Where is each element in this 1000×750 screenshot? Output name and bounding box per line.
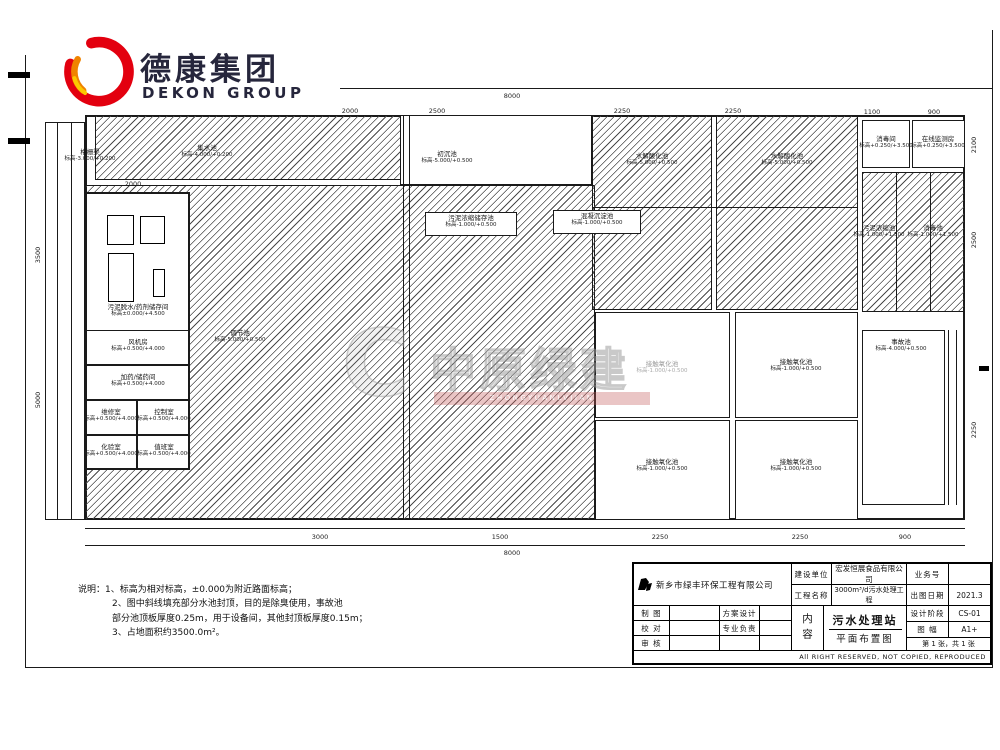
brand-name-en: DEKON GROUP (142, 84, 304, 102)
plan-label-elevation: 标高-1.000/+0.500 (572, 221, 623, 228)
plan-label-name: 格栅渠 (80, 148, 100, 156)
plan-label-name: 集水池 (197, 144, 217, 152)
sheet-frame-left (25, 55, 26, 667)
plan-label-name: 污泥浓缩储存池 (448, 214, 494, 222)
plan-label: 污泥浓缩池标高-1.000/+1.500 (854, 224, 905, 240)
dimension-label: 2250 (652, 533, 669, 541)
plan-label-name: 维修室 (101, 408, 121, 416)
plan-label-name: 调节池 (230, 329, 250, 337)
business-no-label: 业务号 (907, 564, 949, 585)
plan-label: 接触氧化池标高-1.000/+0.500 (771, 458, 822, 474)
plan-label-elevation: 标高-4.000/+0.200 (182, 153, 233, 160)
plan-label-elevation: 标高+0.500/+4.000 (137, 452, 191, 459)
brand-name-cn: 德康集团 (140, 44, 280, 89)
plan-label-elevation: 标高-1.000/+0.500 (637, 467, 688, 474)
plan-label: 值班室标高+0.500/+4.000 (137, 443, 191, 459)
reviewer-label: 审 核 (634, 636, 670, 651)
plan-label-name: 消毒间 (876, 135, 896, 143)
dimension-label: 3500 (34, 247, 42, 264)
plan-label-name: 水解酸化池 (771, 152, 804, 160)
discipline-lead-label: 专业负责 (720, 621, 760, 636)
tank-sludge-row (862, 172, 965, 312)
owner-label: 建设单位 (792, 564, 832, 585)
plan-label-name: 控制室 (154, 408, 174, 416)
checker-label: 校 对 (634, 621, 670, 636)
reviewer-value (670, 636, 720, 651)
plan-label: 接触氧化池标高-1.000/+0.500 (637, 458, 688, 474)
drawing-title-line2: 平面布置图 (836, 631, 894, 645)
tank-collection (95, 115, 420, 180)
dimension-label: 8000 (504, 92, 521, 100)
copyright-note: All RIGHT RESERVED, NOT COPIED, REPRODUC… (634, 651, 990, 663)
company-logo-mark (637, 577, 653, 592)
plan-label-elevation: 标高-1.000/+0.500 (637, 369, 688, 376)
note-line: 2、图中斜线填充部分水池封顶，目的是除臭使用，事故池 (112, 597, 418, 611)
brand-logo: 德康集团 DEKON GROUP (58, 26, 358, 121)
dimension-label: 900 (928, 108, 940, 116)
frame-tick-mark (979, 366, 989, 371)
strip-wall-a (57, 122, 58, 520)
plan-label-name: 水解酸化池 (636, 152, 669, 160)
owner-value: 宏发恒展食品有限公司 (832, 564, 907, 585)
checker-value (670, 621, 720, 636)
plan-label: 水解酸化池标高-5.000/+0.500 (627, 152, 678, 168)
dimension-label: 2250 (614, 107, 631, 115)
plan-label-elevation: 标高±0.000/+4.500 (108, 312, 169, 319)
plan-label-name: 化验室 (101, 443, 121, 451)
equipment-rect (140, 216, 165, 244)
plan-label: 消毒池标高-1.000/+1.500 (908, 224, 959, 240)
plan-label: 加药/储药间标高+0.500/+4.000 (111, 373, 165, 389)
plan-label: 格栅渠标高-3.000/+0.200 (65, 148, 116, 164)
plan-label-elevation: 标高+0.500/+4.000 (137, 417, 191, 424)
plan-label-elevation: 标高+0.500/+4.000 (84, 452, 138, 459)
dimension-label: 1100 (864, 108, 881, 116)
plan-label-elevation: 标高+0.500/+4.000 (111, 347, 165, 354)
dimension-label: 2250 (792, 533, 809, 541)
plan-label-name: 污泥脱水/药剂储存间 (108, 303, 169, 311)
plan-label: 维修室标高+0.500/+4.000 (84, 408, 138, 424)
grit-channel-strip (45, 122, 85, 520)
sludge-divider-b (930, 172, 931, 312)
plan-label: 接触氧化池标高-1.000/+0.500 (771, 358, 822, 374)
plan-label-name: 接触氧化池 (780, 458, 813, 466)
plan-label-elevation: 标高-1.000/+0.500 (771, 367, 822, 374)
note-line: 3、占地面积约3500.0m²。 (112, 626, 418, 640)
dimension-label: 2250 (970, 422, 978, 439)
note-line: 说明：1、标高为相对标高，±0.000为附近路面标高； (78, 583, 418, 597)
plan-label: 水解酸化池标高-5.000/+0.500 (762, 152, 813, 168)
plan-label-elevation: 标高-4.000/+0.500 (876, 347, 927, 354)
corridor-wall-a (948, 330, 949, 505)
plan-label-elevation: 标高-5.000/+0.500 (215, 338, 266, 345)
sheet-count: 第 1 张，共 1 张 (907, 638, 990, 651)
plan-label-name: 接触氧化池 (780, 358, 813, 366)
equipment-rect (153, 269, 165, 297)
plan-label: 接触氧化池标高-1.000/+0.500 (637, 360, 688, 376)
corridor-wall-b (956, 330, 957, 505)
plan-label-name: 污泥浓缩池 (863, 224, 896, 232)
empty-cell-a (720, 636, 760, 651)
plan-label: 在线监测房标高+0.250/+3.500 (911, 135, 965, 151)
plan-label: 控制室标高+0.500/+4.000 (137, 408, 191, 424)
plan-label-elevation: 标高-5.000/+0.500 (762, 161, 813, 168)
dimension-label: 1500 (492, 533, 509, 541)
note-line: 部分池顶板厚度0.25m，用于设备间，其他封顶板厚度0.15m； (112, 612, 418, 626)
plan-label-elevation: 标高+0.500/+4.000 (84, 417, 138, 424)
dimension-label: 900 (899, 533, 911, 541)
plan-label-name: 风机房 (128, 338, 148, 346)
strip-wall-b (71, 122, 72, 520)
discipline-lead-value (760, 621, 792, 636)
dekon-swoosh-icon (58, 26, 140, 114)
project-name-value: 3000m³/d污水处理工程 (832, 585, 907, 606)
tank-emergency (862, 330, 945, 505)
sheet-size-value: A1+ (949, 622, 990, 638)
dimension-label: 5000 (34, 392, 42, 409)
plan-label: 污泥脱水/药剂储存间标高±0.000/+4.500 (108, 303, 169, 319)
plan-label-elevation: 标高-1.000/+0.500 (446, 223, 497, 230)
channel-wall-a (403, 115, 404, 520)
equipment-rect (107, 215, 134, 245)
scheme-design-value (760, 606, 792, 621)
hydrolysis-divider (592, 207, 858, 208)
plan-label: 污泥浓缩储存池标高-1.000/+0.500 (446, 214, 497, 230)
design-stage-value: CS-01 (949, 606, 990, 622)
company-name: 新乡市绿丰环保工程有限公司 (656, 579, 773, 591)
plan-label-name: 接触氧化池 (646, 458, 679, 466)
plan-label-name: 在线监测房 (922, 135, 955, 143)
plan-label: 调节池标高-5.000/+0.500 (215, 329, 266, 345)
plan-label-name: 加药/储药间 (121, 373, 156, 381)
plan-label: 化验室标高+0.500/+4.000 (84, 443, 138, 459)
plan-label-name: 消毒池 (923, 224, 943, 232)
plan-label-name: 值班室 (154, 443, 174, 451)
design-company: 新乡市绿丰环保工程有限公司 (634, 564, 792, 606)
drawing-title-line1: 污水处理站 (829, 612, 902, 630)
sheet-size-label: 图 幅 (907, 622, 949, 638)
empty-cell-b (760, 636, 792, 651)
plan-label: 集水池标高-4.000/+0.200 (182, 144, 233, 160)
plan-label-elevation: 标高-1.000/+1.500 (854, 233, 905, 240)
dimension-label: 2100 (970, 137, 978, 154)
drawing-title-cell: 污水处理站 平面布置图 (824, 606, 907, 651)
sheet-frame-right (992, 30, 993, 668)
plan-label-elevation: 标高+0.250/+3.500 (859, 144, 913, 151)
sheet-frame-top (340, 88, 992, 89)
plan-label: 风机房标高+0.500/+4.000 (111, 338, 165, 354)
content-label-cell: 内容 (792, 606, 824, 651)
plan-label-elevation: 标高+0.500/+4.000 (111, 382, 165, 389)
plan-label: 混凝沉淀池标高-1.000/+0.500 (572, 212, 623, 228)
issue-date-label: 出图日期 (907, 585, 949, 606)
plan-label: 事故池标高-4.000/+0.500 (876, 338, 927, 354)
drafter-value (670, 606, 720, 621)
plan-label: 消毒间标高+0.250/+3.500 (859, 135, 913, 151)
dimension-label: 3000 (312, 533, 329, 541)
dimension-label: 2500 (970, 232, 978, 249)
plan-label-elevation: 标高-5.000/+0.500 (627, 161, 678, 168)
sludge-divider-a (896, 172, 897, 312)
dimension-label: 2500 (429, 107, 446, 115)
plan-label: 初沉池标高-5.000/+0.500 (422, 150, 473, 166)
scheme-design-label: 方案设计 (720, 606, 760, 621)
plan-label-elevation: 标高-1.000/+0.500 (771, 467, 822, 474)
frame-tick-mark (8, 72, 30, 78)
plan-label-elevation: 标高-3.000/+0.200 (65, 157, 116, 164)
design-stage-label: 设计阶段 (907, 606, 949, 622)
issue-date-value: 2021.3 (949, 585, 990, 606)
sheet-frame-bottom (25, 667, 992, 668)
dim-chain-lower-2 (85, 545, 965, 546)
drawing-notes: 说明：1、标高为相对标高，±0.000为附近路面标高；2、图中斜线填充部分水池封… (78, 583, 418, 641)
title-block: 新乡市绿丰环保工程有限公司 建设单位 宏发恒展食品有限公司 业务号 工程名称 3… (632, 562, 992, 665)
project-name-label: 工程名称 (792, 585, 832, 606)
dim-chain-lower-1 (85, 528, 965, 529)
tank-hydrolysis-2 (716, 115, 858, 310)
plan-label-name: 初沉池 (437, 150, 457, 158)
plan-label-elevation: 标高-1.000/+1.500 (908, 233, 959, 240)
dimension-label: 8000 (504, 549, 521, 557)
plan-label-name: 接触氧化池 (646, 360, 679, 368)
dimension-label: 2250 (725, 107, 742, 115)
plan-label-name: 混凝沉淀池 (581, 212, 614, 220)
content-label: 内容 (800, 613, 815, 644)
plan-label-elevation: 标高+0.250/+3.500 (911, 144, 965, 151)
channel-wall-b (409, 115, 410, 520)
plan-label-elevation: 标高-5.000/+0.500 (422, 159, 473, 166)
equipment-rect (108, 253, 134, 302)
plan-label-name: 事故池 (891, 338, 911, 346)
frame-tick-mark (8, 138, 30, 144)
dimension-label: 2000 (125, 180, 142, 188)
drafter-label: 制 图 (634, 606, 670, 621)
business-no-value (949, 564, 990, 585)
